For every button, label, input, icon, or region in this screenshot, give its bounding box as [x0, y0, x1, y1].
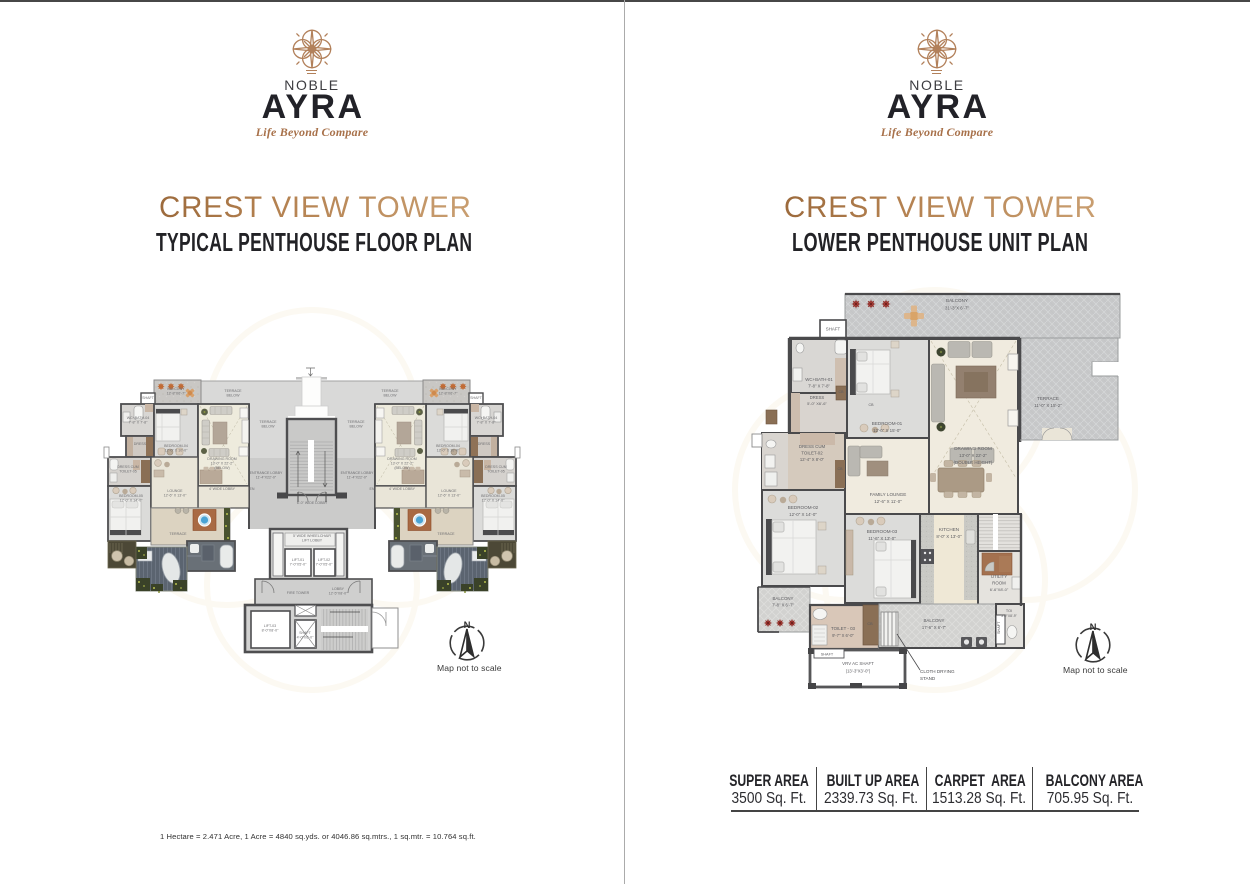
svg-text:EN: EN — [370, 487, 375, 491]
svg-text:DRESS CUM: DRESS CUM — [799, 444, 826, 449]
svg-text:DRESS CUM: DRESS CUM — [485, 465, 507, 469]
svg-text:SHAFT: SHAFT — [997, 621, 1001, 634]
svg-text:LIFT-01: LIFT-01 — [292, 558, 304, 562]
svg-text:TOI: TOI — [1006, 609, 1012, 613]
svg-text:12'-4" X 8'-0": 12'-4" X 8'-0" — [800, 457, 825, 462]
svg-text:BEDROOM-05: BEDROOM-05 — [481, 494, 505, 498]
svg-text:LOUNGE: LOUNGE — [441, 489, 457, 493]
svg-text:CB: CB — [867, 622, 873, 626]
svg-text:8'-0"X8'-0": 8'-0"X8'-0" — [262, 629, 279, 633]
svg-text:12'-5"X8'-0": 12'-5"X8'-0" — [329, 592, 348, 596]
svg-text:7'-0"X5'-0": 7'-0"X5'-0" — [290, 563, 307, 567]
svg-text:12'-6" X 13'-0": 12'-6" X 13'-0" — [164, 494, 187, 498]
svg-text:BALCONY: BALCONY — [773, 596, 794, 601]
svg-text:LIFT LOBBY: LIFT LOBBY — [302, 539, 323, 543]
svg-text:TOILET-05: TOILET-05 — [119, 470, 137, 474]
svg-text:BELOW: BELOW — [384, 394, 398, 398]
svg-text:BALCONY: BALCONY — [924, 618, 945, 623]
svg-text:TERRACE: TERRACE — [381, 389, 399, 393]
svg-text:TERRACE: TERRACE — [169, 532, 187, 536]
svg-text:6'-0" WIDE LOBBY: 6'-0" WIDE LOBBY — [297, 501, 328, 505]
svg-text:LIFT-03: LIFT-03 — [264, 624, 276, 628]
svg-text:TERRACE: TERRACE — [1037, 396, 1059, 401]
svg-text:7'-8" X 7'-8": 7'-8" X 7'-8" — [808, 384, 830, 389]
svg-text:EN: EN — [250, 487, 255, 491]
svg-text:12'-0" X 14'-0": 12'-0" X 14'-0" — [120, 499, 143, 503]
svg-text:13'-0" X 22'-2": 13'-0" X 22'-2" — [391, 462, 414, 466]
svg-text:CLOTH DRYING: CLOTH DRYING — [920, 669, 955, 674]
svg-text:BEDROOM-04: BEDROOM-04 — [164, 444, 188, 448]
svg-text:3'-2"X8'-9": 3'-2"X8'-9" — [1001, 614, 1018, 618]
svg-text:31'-3"X 6'-7": 31'-3"X 6'-7" — [945, 306, 970, 311]
svg-text:11'-4"X22'-0": 11'-4"X22'-0" — [256, 476, 277, 480]
svg-text:12'-6" X 13'-0": 12'-6" X 13'-0" — [438, 494, 461, 498]
svg-text:7'-8" X 7'-8": 7'-8" X 7'-8" — [477, 421, 496, 425]
svg-text:TOILET-02: TOILET-02 — [801, 451, 823, 456]
svg-text:11'-6" X 13'-0": 11'-6" X 13'-0" — [868, 536, 896, 541]
svg-text:CB: CB — [839, 390, 845, 394]
svg-text:4' WIDE LOBBY: 4' WIDE LOBBY — [389, 487, 416, 491]
svg-text:ROOM: ROOM — [992, 581, 1006, 586]
svg-text:5' WIDE WHEELCHAIR: 5' WIDE WHEELCHAIR — [293, 534, 331, 538]
svg-text:(BELOW): (BELOW) — [394, 466, 409, 470]
svg-text:WC+BATH-04: WC+BATH-04 — [127, 416, 150, 420]
svg-text:FIRE TOWER: FIRE TOWER — [287, 591, 310, 595]
svg-text:12'-8"X6'-7": 12'-8"X6'-7" — [167, 392, 186, 396]
svg-text:BEDROOM-02: BEDROOM-02 — [788, 505, 819, 510]
svg-text:6'-6"X8'-0": 6'-6"X8'-0" — [990, 587, 1009, 592]
svg-text:DRAWING ROOM: DRAWING ROOM — [954, 446, 992, 451]
svg-text:BELOW: BELOW — [350, 425, 364, 429]
svg-text:CB: CB — [838, 467, 844, 471]
svg-text:DRESS: DRESS — [134, 442, 147, 446]
svg-text:BEDROOM-03: BEDROOM-03 — [867, 529, 898, 534]
svg-text:12'-0" X 14'-0": 12'-0" X 14'-0" — [789, 512, 817, 517]
svg-text:TERRACE: TERRACE — [437, 532, 455, 536]
svg-text:11'-4"X22'-0": 11'-4"X22'-0" — [347, 476, 368, 480]
svg-text:DRAWING ROOM: DRAWING ROOM — [207, 457, 236, 461]
svg-text:(DOUBLE HEIGHT): (DOUBLE HEIGHT) — [954, 460, 993, 465]
svg-text:FAMILY LOUNGE: FAMILY LOUNGE — [870, 492, 907, 497]
svg-text:12'-6" X 11'-0": 12'-6" X 11'-0" — [874, 499, 902, 504]
svg-text:7'-0"X5'-0": 7'-0"X5'-0" — [316, 563, 333, 567]
svg-text:BEDROOM-05: BEDROOM-05 — [119, 494, 143, 498]
svg-text:DRESS: DRESS — [810, 395, 825, 400]
svg-text:TOILET - 03: TOILET - 03 — [831, 626, 856, 631]
svg-text:12'-8"X6'-7": 12'-8"X6'-7" — [439, 392, 458, 396]
svg-text:WC+BATH-04: WC+BATH-04 — [475, 416, 498, 420]
svg-text:12'-0" X 10'-0": 12'-0" X 10'-0" — [165, 449, 188, 453]
svg-text:17'-6" X 6'-7": 17'-6" X 6'-7" — [922, 625, 947, 630]
svg-text:DRESS: DRESS — [478, 442, 491, 446]
svg-text:BELOW: BELOW — [262, 425, 276, 429]
svg-text:13'-0" X 22'-2": 13'-0" X 22'-2" — [959, 453, 987, 458]
svg-text:(BELOW): (BELOW) — [214, 466, 229, 470]
svg-text:BELOW: BELOW — [227, 394, 241, 398]
svg-text:BEDROOM-01: BEDROOM-01 — [872, 421, 903, 426]
svg-text:TOILET-05: TOILET-05 — [487, 470, 505, 474]
svg-text:WC+BATH-01: WC+BATH-01 — [805, 377, 833, 382]
svg-text:13'-0" X 22'-2": 13'-0" X 22'-2" — [211, 462, 234, 466]
svg-text:12'-0" X 15'-0": 12'-0" X 15'-0" — [873, 428, 901, 433]
svg-text:SHAFT: SHAFT — [470, 396, 483, 400]
svg-text:UTILITY: UTILITY — [991, 574, 1007, 579]
svg-text:8'-0" X 13'-0": 8'-0" X 13'-0" — [936, 534, 962, 539]
svg-text:LIFT-02: LIFT-02 — [318, 558, 330, 562]
svg-text:BEDROOM-04: BEDROOM-04 — [436, 444, 460, 448]
svg-text:9'-7" X 6'-0": 9'-7" X 6'-0" — [832, 633, 854, 638]
svg-text:TERRACE: TERRACE — [347, 420, 365, 424]
svg-text:BALCONY: BALCONY — [946, 298, 968, 303]
svg-text:ENTRANCE LOBBY: ENTRANCE LOBBY — [250, 471, 283, 475]
svg-text:DRESS CUM: DRESS CUM — [117, 465, 139, 469]
svg-text:SHAFT: SHAFT — [826, 327, 841, 332]
svg-text:BALCONY: BALCONY — [167, 387, 185, 391]
svg-text:5'-0" X6'-6": 5'-0" X6'-6" — [807, 401, 827, 406]
svg-text:KITCHEN: KITCHEN — [939, 527, 959, 532]
svg-text:4'-0"X6'-0": 4'-0"X6'-0" — [297, 636, 314, 640]
svg-text:CB: CB — [869, 403, 875, 407]
svg-text:LOUNGE: LOUNGE — [167, 489, 183, 493]
svg-text:12'-0" X 10'-0": 12'-0" X 10'-0" — [437, 449, 460, 453]
svg-text:STAND: STAND — [920, 676, 936, 681]
svg-text:11'-0" X 15'-2": 11'-0" X 15'-2" — [1034, 403, 1062, 408]
svg-text:TERRACE: TERRACE — [259, 420, 277, 424]
svg-text:BALCONY: BALCONY — [439, 387, 457, 391]
svg-text:SHAFT: SHAFT — [142, 396, 155, 400]
svg-text:TERRACE: TERRACE — [224, 389, 242, 393]
svg-text:VRV AC SHAFT: VRV AC SHAFT — [842, 661, 874, 666]
svg-text:12'-0" X 14'-0": 12'-0" X 14'-0" — [482, 499, 505, 503]
svg-text:7'-8" X 7'-8": 7'-8" X 7'-8" — [129, 421, 148, 425]
svg-text:4' WIDE LOBBY: 4' WIDE LOBBY — [209, 487, 236, 491]
svg-text:(13'-3"X3'-0"): (13'-3"X3'-0") — [846, 669, 871, 674]
svg-text:SHAFT: SHAFT — [821, 653, 834, 657]
svg-text:LOBBY: LOBBY — [332, 587, 345, 591]
svg-text:ENTRANCE LOBBY: ENTRANCE LOBBY — [341, 471, 374, 475]
svg-text:DRAWING ROOM: DRAWING ROOM — [387, 457, 416, 461]
svg-text:7'-8" X 6'-7": 7'-8" X 6'-7" — [772, 603, 794, 608]
svg-text:SHAFT: SHAFT — [299, 631, 312, 635]
